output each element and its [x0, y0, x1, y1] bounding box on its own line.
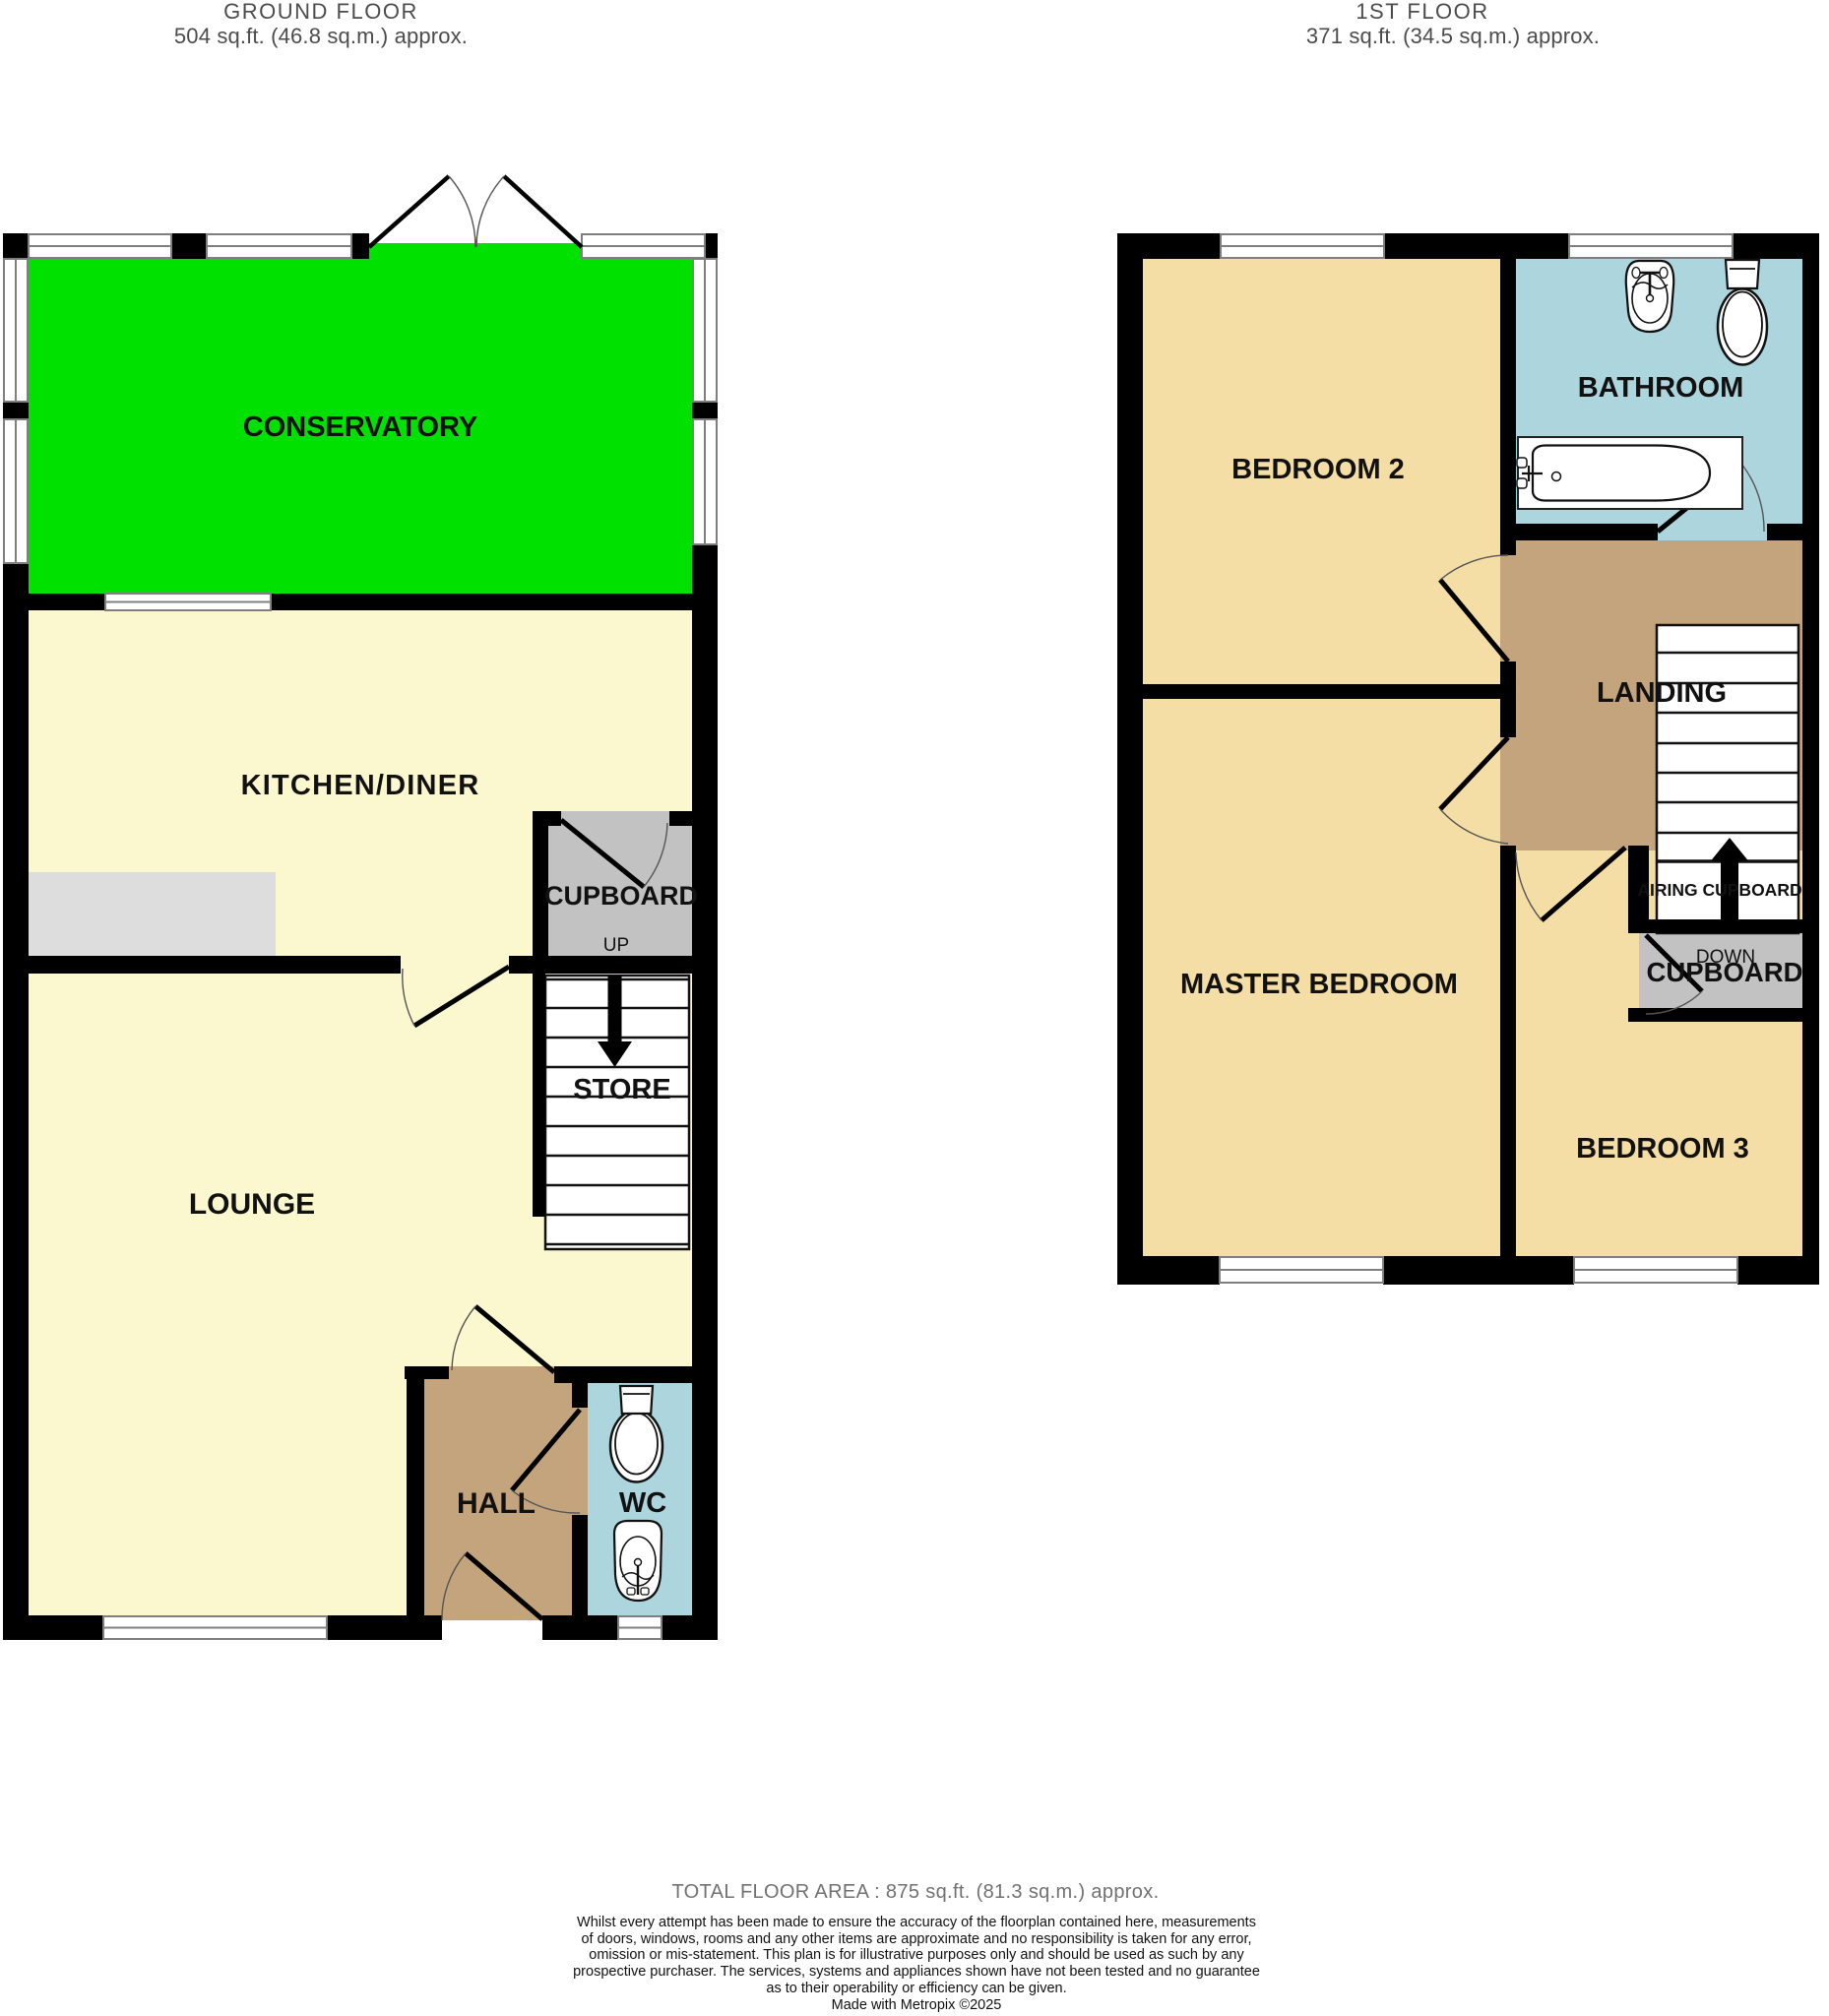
svg-text:Whilst every attempt has been: Whilst every attempt has been made to en… — [577, 1915, 1256, 1930]
svg-text:HALL: HALL — [457, 1487, 536, 1520]
svg-text:GROUND FLOOR: GROUND FLOOR — [223, 0, 418, 24]
svg-text:BATHROOM: BATHROOM — [1578, 372, 1744, 404]
svg-text:BEDROOM 2: BEDROOM 2 — [1231, 454, 1405, 485]
svg-text:STORE: STORE — [573, 1074, 670, 1105]
svg-text:371 sq.ft. (34.5 sq.m.) approx: 371 sq.ft. (34.5 sq.m.) approx. — [1306, 24, 1600, 48]
svg-text:omission or mis-statement. Thi: omission or mis-statement. This plan is … — [589, 1947, 1244, 1963]
svg-text:CUPBOARD: CUPBOARD — [544, 881, 698, 911]
svg-text:LANDING: LANDING — [1597, 677, 1727, 709]
svg-text:MASTER BEDROOM: MASTER BEDROOM — [1180, 969, 1458, 1000]
svg-text:as to their operability or eff: as to their operability or efficiency ca… — [766, 1981, 1066, 1996]
svg-text:BEDROOM 3: BEDROOM 3 — [1576, 1133, 1749, 1165]
svg-text:prospective purchaser. The ser: prospective purchaser. The services, sys… — [573, 1964, 1260, 1980]
svg-text:Made with Metropix ©2025: Made with Metropix ©2025 — [832, 1997, 1002, 2013]
svg-text:AIRING CUPBOARD: AIRING CUPBOARD — [1637, 880, 1801, 900]
svg-text:of doors, windows, rooms and a: of doors, windows, rooms and any other i… — [581, 1931, 1251, 1947]
svg-text:KITCHEN/DINER: KITCHEN/DINER — [241, 770, 480, 801]
svg-text:CONSERVATORY: CONSERVATORY — [243, 411, 478, 443]
svg-text:WC: WC — [619, 1487, 666, 1519]
svg-text:CUPBOARD: CUPBOARD — [1647, 957, 1803, 987]
svg-text:UP: UP — [603, 935, 629, 956]
svg-text:LOUNGE: LOUNGE — [189, 1188, 315, 1221]
svg-text:504 sq.ft. (46.8 sq.m.) approx: 504 sq.ft. (46.8 sq.m.) approx. — [174, 24, 468, 48]
svg-text:1ST FLOOR: 1ST FLOOR — [1356, 0, 1488, 24]
svg-text:TOTAL FLOOR AREA : 875 sq.ft.: TOTAL FLOOR AREA : 875 sq.ft. (81.3 sq.m… — [671, 1881, 1159, 1903]
